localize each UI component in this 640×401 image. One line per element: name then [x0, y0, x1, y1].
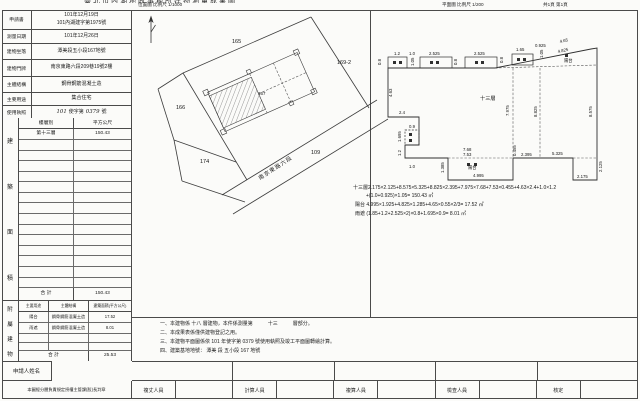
- annex-col-structure: 主體結構: [49, 301, 89, 311]
- dimension-label: 0.455: [512, 145, 517, 156]
- info-row-usage: 主要用途 集合住宅: [2, 93, 131, 106]
- floor-cell: [19, 214, 74, 224]
- annex-total-label: 合 計: [19, 351, 89, 361]
- floor-area-rows: 第十三層150.43: [19, 129, 131, 288]
- floor-area-total-row: 合 計 150.43: [19, 288, 131, 300]
- table-row: [19, 267, 131, 278]
- dimension-label: 167: [258, 91, 266, 96]
- floor-cell: [19, 203, 74, 213]
- seal-cell: [335, 362, 436, 380]
- location-map: 165169-2166174109167南京東路六段: [132, 10, 370, 317]
- table-row: [19, 140, 131, 151]
- survey-date-value: 101年12月26日: [32, 30, 131, 43]
- location-map-scale-label: 位置圖 比例尺 1/1000: [138, 2, 182, 8]
- application-label: 申請書: [2, 10, 32, 29]
- area-cell: [74, 214, 131, 224]
- dimension-label: 2.175: [577, 174, 588, 179]
- note-line: 四、建築基地地號： 潭美 段 五小段 167 地號: [160, 347, 520, 356]
- dimension-label: 8.825: [533, 106, 538, 117]
- dimension-label: 2.525: [429, 51, 440, 56]
- area-cell: [74, 246, 131, 256]
- table-row: [19, 278, 131, 289]
- table-row: [19, 235, 131, 246]
- dimension-label: 165: [232, 39, 241, 45]
- table-row: [19, 225, 131, 236]
- annex-rows: 陽台鋼骨鋼筋混凝土造17.52雨遮鋼骨鋼筋混凝土造8.01: [19, 312, 131, 351]
- dimension-label: 1.0: [409, 51, 416, 56]
- col-floor-header: 樓層別: [19, 118, 74, 128]
- dimension-label: 1.0: [409, 164, 416, 169]
- floor-cell: [19, 246, 74, 256]
- canopy-formula-line: 雨遮 (1.85+1.2+2.525×2)×0.8+1.695×0.9= 8.0…: [355, 210, 466, 217]
- note-line: 三、本建物平面圖係依 101 年使字第 0379 號使用執照及竣工平面圖轉繪計算…: [160, 338, 520, 347]
- annex-cell: 雨遮: [19, 323, 49, 333]
- side-label-char: 屬: [7, 320, 13, 328]
- floor-total-label: 合 計: [19, 288, 74, 300]
- floor-area-table: 建築面積 樓層別 平方公尺 第十三層150.43 合 計 150.43: [2, 118, 132, 300]
- note-line: 二、本成果表係僅供建物登記之用。: [160, 329, 520, 338]
- table-row: [19, 246, 131, 257]
- table-row: [19, 214, 131, 225]
- annex-cell: [49, 343, 89, 351]
- dimension-label: 1.05: [410, 57, 415, 66]
- floor-cell: [19, 193, 74, 203]
- annex-side-label: 附屬建物: [2, 301, 19, 361]
- site-value: 潭美段五小段167地號: [32, 44, 131, 59]
- dimension-label: 109: [311, 150, 320, 156]
- table-row: 第十三層150.43: [19, 129, 131, 140]
- dimension-label: 174: [200, 159, 209, 165]
- structure-value: 鋼骨鋼筋混凝土造: [32, 77, 131, 92]
- annex-cell: [19, 343, 49, 351]
- annex-cell: 17.52: [89, 312, 131, 322]
- floor-area-header: 樓層別 平方公尺: [19, 118, 131, 129]
- usage-value: 集合住宅: [32, 93, 131, 105]
- annex-col-area: 建築面積(平方公尺): [89, 301, 131, 311]
- dimension-label: 1.695: [397, 131, 402, 142]
- dimension-label: 0.925: [535, 43, 546, 48]
- dimension-label: 4.995: [473, 173, 484, 178]
- info-row-site: 建物坐落 潭美段五小段167地號: [2, 44, 131, 60]
- applicant-name-box: 申請人姓名: [2, 361, 52, 381]
- floor-cell: [19, 140, 74, 150]
- annex-header: 主要用途 主體結構 建築面積(平方公尺): [19, 301, 131, 312]
- dimension-label: 2.4: [399, 110, 406, 115]
- side-label-char: 建: [7, 136, 13, 145]
- floor-area-side-label: 建築面積: [2, 118, 19, 300]
- window-marks: [393, 54, 568, 166]
- construction-dashed-lines: [448, 54, 597, 158]
- site-label: 建物坐落: [2, 44, 32, 59]
- text-label: 陽台: [564, 57, 573, 64]
- text-label: 南京東路六段: [257, 154, 294, 182]
- table-row: [19, 343, 131, 352]
- info-row-structure: 主體結構 鋼骨鋼筋混凝土造: [2, 77, 131, 93]
- annex-cell: [89, 343, 131, 351]
- side-label-char: 建: [7, 335, 13, 343]
- col-area-header: 平方公尺: [74, 118, 131, 128]
- application-value: 101年12月19日 101內湖建字第1975號: [32, 10, 131, 29]
- area-cell: [74, 172, 131, 182]
- dimension-label: 0.8: [377, 58, 382, 65]
- area-cell: [74, 278, 131, 288]
- seal-cell: [233, 362, 334, 380]
- structure-label: 主體結構: [2, 77, 32, 92]
- annex-table: 附屬建物 主要用途 主體結構 建築面積(平方公尺) 陽台鋼骨鋼筋混凝土造17.5…: [2, 300, 132, 361]
- area-cell: [74, 225, 131, 235]
- balcony-formula-line: 陽台 4.995×1.925+4.825×1.285+4.65×0.55×2/3…: [355, 201, 484, 208]
- area-cell: [74, 267, 131, 277]
- table-row: 陽台鋼骨鋼筋混凝土造17.52: [19, 312, 131, 323]
- floor-cell: [19, 161, 74, 171]
- area-cell: [74, 193, 131, 203]
- application-doc-no: 101內湖建字第1975號: [57, 20, 106, 28]
- usage-label: 主要用途: [2, 93, 32, 105]
- address-value: 南京東路六段209巷19號2樓: [32, 60, 131, 76]
- parcel-boundaries: [158, 17, 388, 214]
- signer-blank-cell: [277, 381, 334, 399]
- application-date: 101年12月19日: [64, 12, 98, 20]
- dimension-label: 2.395: [521, 152, 532, 157]
- dimension-label: 2.125: [598, 161, 603, 172]
- permit-mid-text: 使字第: [69, 109, 84, 117]
- dimension-label: 4.63: [388, 88, 393, 97]
- floor-cell: [19, 225, 74, 235]
- signature-seal-row: [132, 361, 638, 381]
- floor-cell: [19, 172, 74, 182]
- annex-cell: [19, 334, 49, 342]
- annex-total-row: 合 計 25.53: [19, 351, 131, 361]
- north-arrow-icon: [148, 16, 155, 44]
- table-row: [19, 193, 131, 204]
- side-label-char: 面: [7, 227, 13, 236]
- info-row-survey-date: 測量日期 101年12月26日: [2, 30, 131, 44]
- signer-blank-cell: [176, 381, 233, 399]
- survey-result-sheet: 臺北市內湖地政事務所建物測量成果圖 位置圖 比例尺 1/1000 平面圖 比例尺…: [0, 0, 640, 401]
- signer-blank-cell: [480, 381, 537, 399]
- table-row: 雨遮鋼骨鋼筋混凝土造8.01: [19, 323, 131, 334]
- annex-cell: [89, 334, 131, 342]
- dimension-label: 1.2: [397, 149, 402, 156]
- area-cell: 150.43: [74, 129, 131, 139]
- floor-cell: [19, 278, 74, 288]
- permit-suffix-text: 號: [102, 109, 107, 117]
- info-row-application: 申請書 101年12月19日 101內湖建字第1975號: [2, 10, 131, 30]
- table-row: [19, 172, 131, 183]
- page-info: 共1頁 第1頁: [543, 2, 568, 8]
- area-formula-line: +(1.0+0.925)×1.05= 150.43 ㎡: [366, 192, 433, 199]
- floor-cell: [19, 267, 74, 277]
- floor-cell: 第十三層: [19, 129, 74, 139]
- annex-col-usage: 主要用途: [19, 301, 49, 311]
- area-cell: [74, 151, 131, 161]
- annex-cell: 鋼骨鋼筋混凝土造: [49, 312, 89, 322]
- dimension-label: 4.825: [557, 47, 569, 54]
- area-cell: [74, 161, 131, 171]
- dimension-label: 1.65: [516, 47, 525, 52]
- table-row: [19, 151, 131, 162]
- note-line: 一、本建物係 十八 層建物，本件係測量第 十三 層部分。: [160, 320, 520, 329]
- floor-cell: [19, 256, 74, 266]
- annex-cell: 8.01: [89, 323, 131, 333]
- signer-label: 檢查人員: [436, 381, 480, 399]
- dimension-label: 7.975: [505, 105, 510, 116]
- address-label: 建物門牌: [2, 60, 32, 76]
- signer-label: 複算人員: [334, 381, 378, 399]
- side-label-char: 物: [7, 350, 13, 358]
- dimension-label: 0.8: [499, 56, 504, 63]
- table-row: [19, 182, 131, 193]
- area-cell: [74, 203, 131, 213]
- side-label-char: 積: [7, 273, 13, 282]
- area-cell: [74, 256, 131, 266]
- signer-label: 複丈人員: [132, 381, 176, 399]
- floor-cell: [19, 182, 74, 192]
- table-row: [19, 256, 131, 267]
- table-row: [19, 334, 131, 343]
- info-row-address: 建物門牌 南京東路六段209巷19號2樓: [2, 60, 131, 77]
- dimension-label: 4.65: [559, 37, 569, 44]
- area-cell: [74, 235, 131, 245]
- signer-label: 計算人員: [233, 381, 277, 399]
- permit-label: 使用執照: [2, 106, 32, 118]
- side-label-char: 附: [7, 305, 13, 313]
- floor-plan: 0.81.21.01.052.5250.82.5250.81.650.9251.…: [368, 18, 640, 188]
- notes-block: 一、本建物係 十八 層建物，本件係測量第 十三 層部分。二、本成果表係僅供建物登…: [160, 320, 520, 356]
- permit-year-handwritten: 101: [56, 108, 66, 116]
- table-row: [19, 161, 131, 172]
- annex-cell: 鋼骨鋼筋混凝土造: [49, 323, 89, 333]
- signature-label-row: 複丈人員計算人員複算人員檢查人員核定: [132, 381, 638, 399]
- annex-total-value: 25.53: [89, 351, 131, 361]
- signer-blank-cell: [581, 381, 638, 399]
- annex-cell: 陽台: [19, 312, 49, 322]
- floor-cell: [19, 235, 74, 245]
- info-table: 申請書 101年12月19日 101內湖建字第1975號 測量日期 101年12…: [2, 10, 132, 118]
- info-row-permit: 使用執照 101 使字第 0379 號: [2, 106, 131, 118]
- side-label-char: 築: [7, 182, 13, 191]
- dimension-label: 169-2: [337, 60, 351, 66]
- dimension-label: 0.9: [409, 124, 416, 129]
- dimension-label: 0.8: [453, 58, 458, 65]
- signer-blank-cell: [378, 381, 435, 399]
- dimension-label: 8.575: [588, 106, 593, 117]
- table-row: [19, 203, 131, 214]
- dimension-label: 2.525: [474, 51, 485, 56]
- floor-total-value: 150.43: [74, 288, 131, 300]
- survey-date-label: 測量日期: [2, 30, 32, 43]
- text-label: 陽台: [468, 164, 477, 171]
- approval-note: 本圖經分層負責規定授權主管課(股)長判章: [2, 381, 132, 399]
- dimension-label: 1.05: [539, 49, 544, 58]
- seal-cell: [436, 362, 537, 380]
- dimension-label: 1.2: [394, 51, 401, 56]
- dimension-label: 5.325: [552, 151, 563, 156]
- seal-cell: [132, 362, 233, 380]
- signer-label: 核定: [537, 381, 581, 399]
- text-label: 十三層: [480, 94, 496, 102]
- annex-cell: [49, 334, 89, 342]
- dimension-label: 1.385: [440, 162, 445, 173]
- area-cell: [74, 182, 131, 192]
- dimension-label: 166: [176, 105, 185, 111]
- permit-no-handwritten: 0379: [86, 108, 100, 116]
- seal-cell: [538, 362, 638, 380]
- dimension-label: 7.53: [463, 152, 472, 157]
- area-cell: [74, 140, 131, 150]
- floor-plan-scale-label: 平面圖 比例尺 1/200: [442, 2, 484, 8]
- notes-top-divider: [132, 317, 638, 318]
- permit-value: 101 使字第 0379 號: [32, 106, 131, 118]
- floor-cell: [19, 151, 74, 161]
